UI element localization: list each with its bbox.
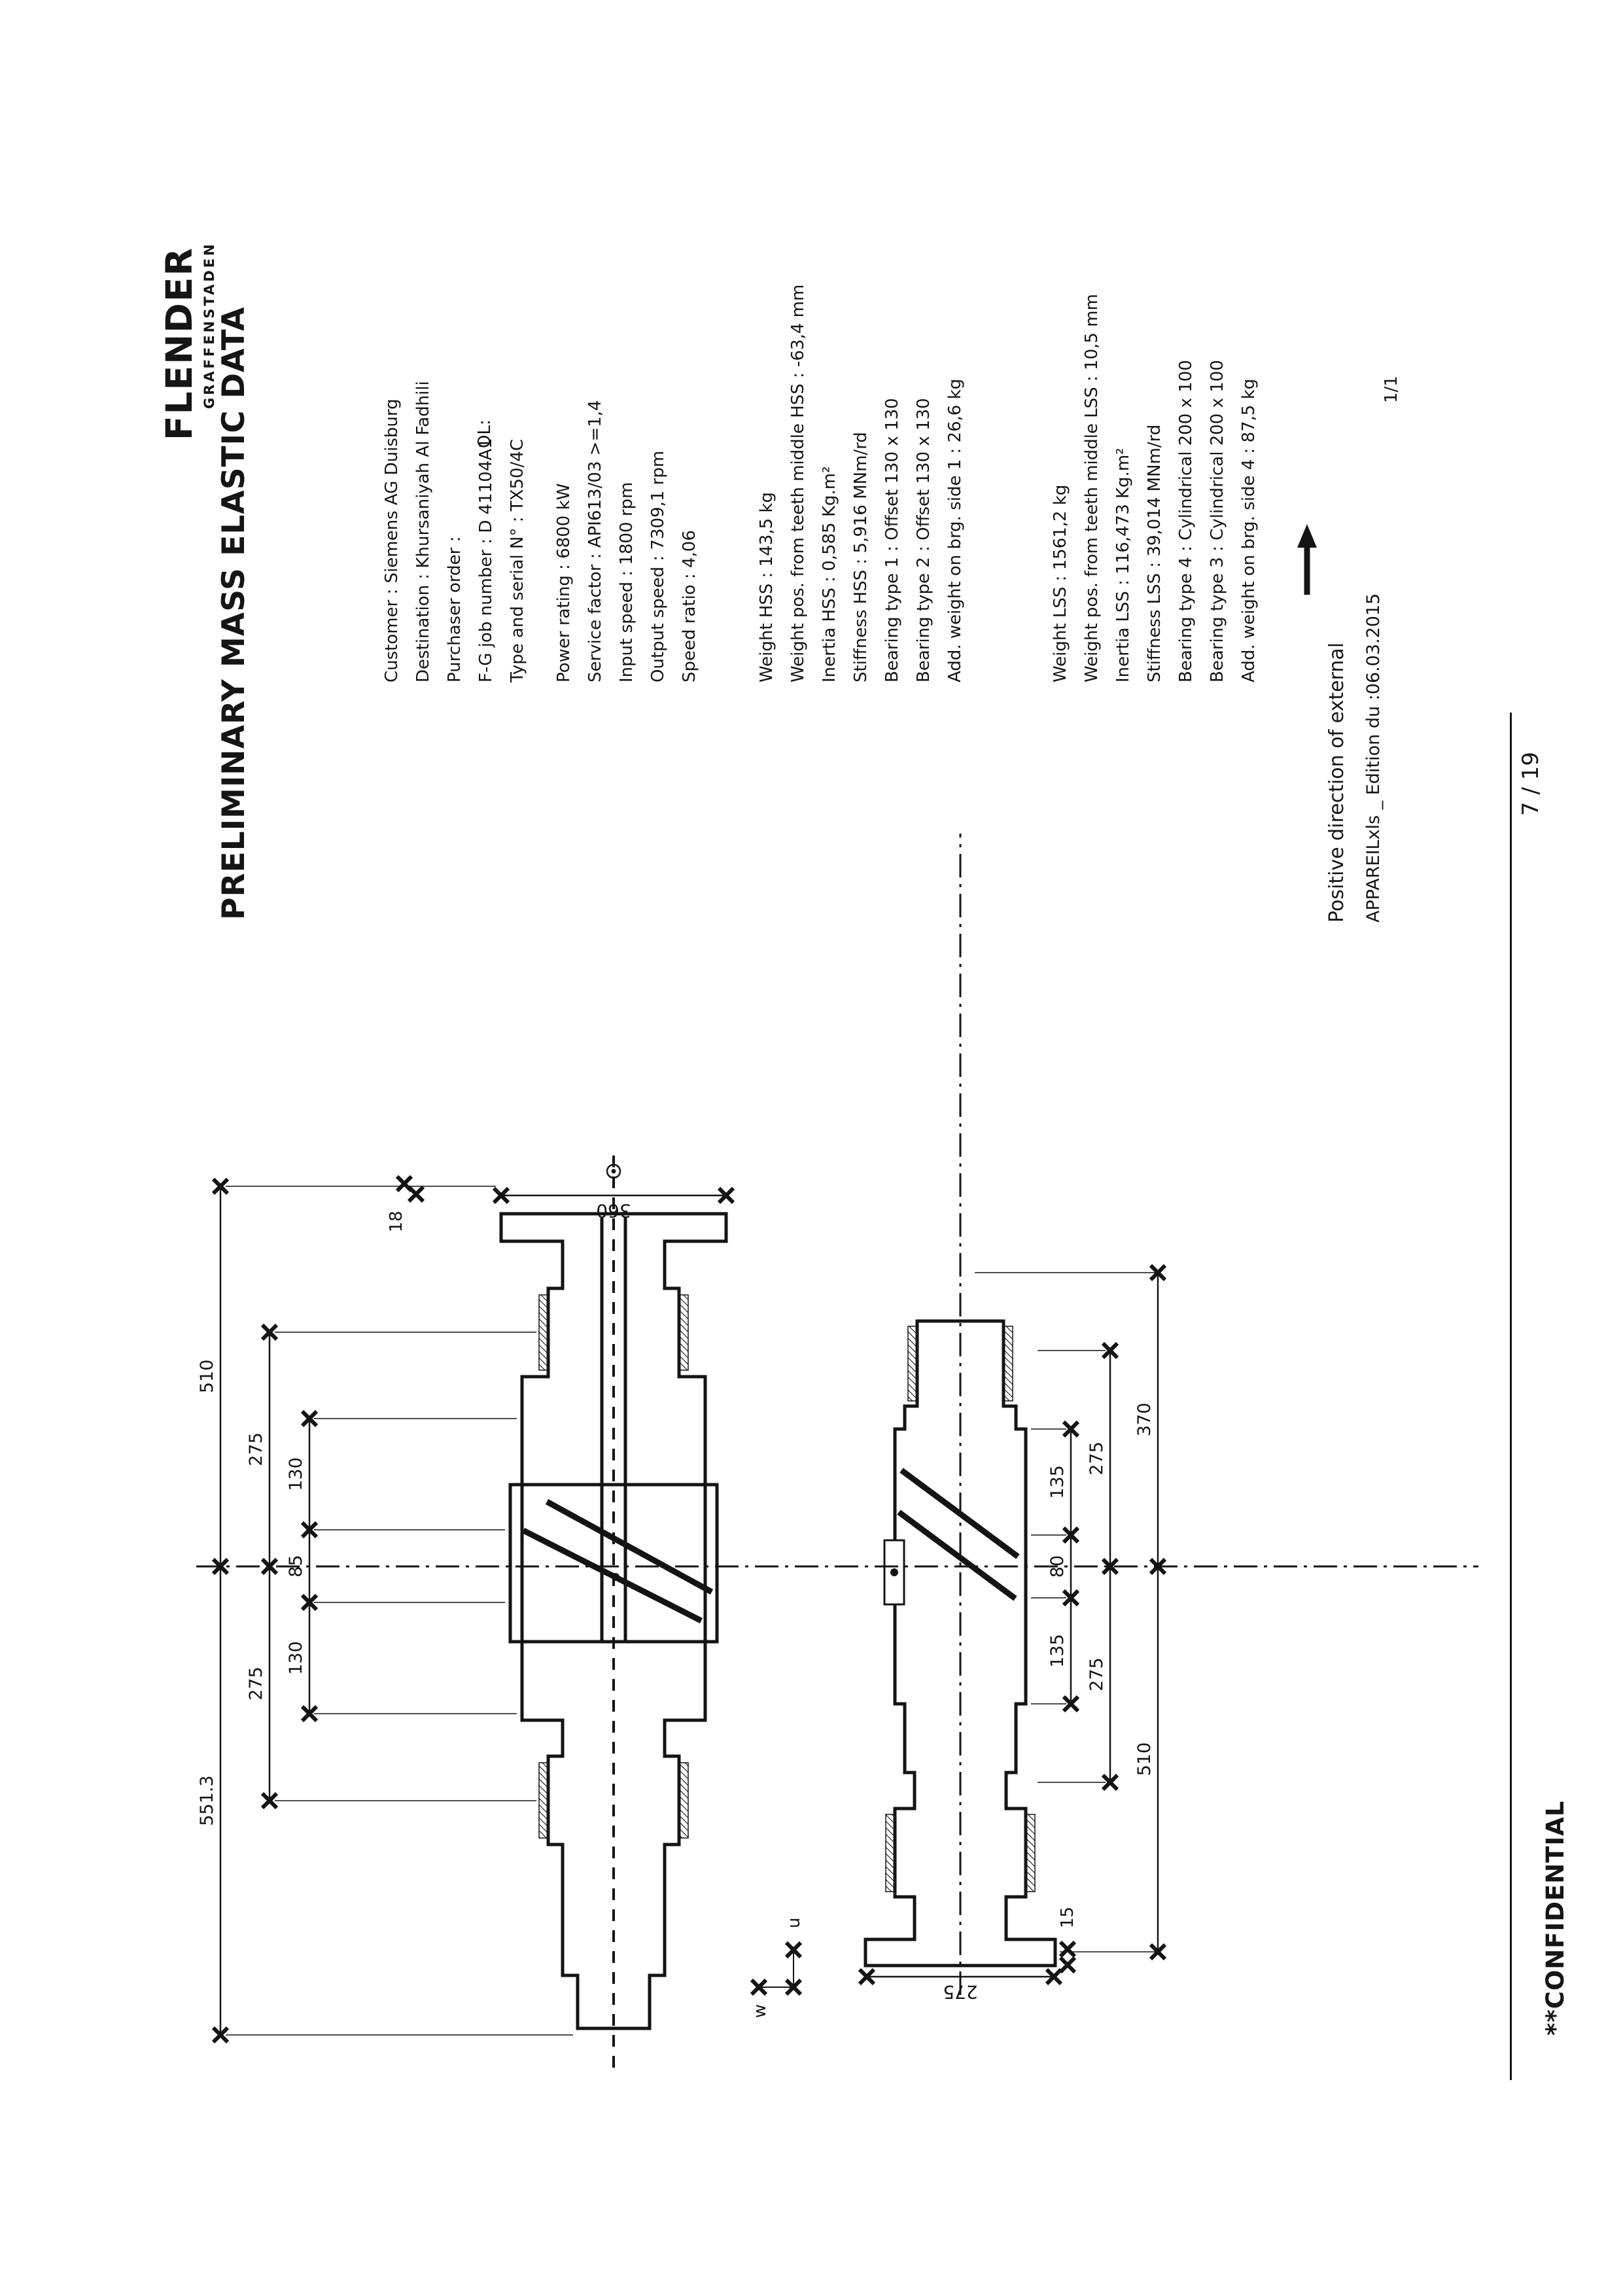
dimension-label: 275 bbox=[1087, 1441, 1107, 1475]
dimension-label: 15 bbox=[1058, 1907, 1077, 1928]
dimension-label: 135 bbox=[1047, 1465, 1068, 1499]
dimension-label: 130 bbox=[286, 1641, 306, 1675]
bearing-pad bbox=[886, 1814, 895, 1892]
axis-end-symbol-dot bbox=[612, 1169, 616, 1174]
hss-cg-dot bbox=[612, 1573, 620, 1581]
dimension-label: 360 bbox=[596, 1200, 631, 1222]
dimension-label: 510 bbox=[197, 1360, 217, 1394]
bearing-pad bbox=[908, 1326, 917, 1401]
dimension-label: 130 bbox=[286, 1457, 306, 1491]
dimension-label: 551.3 bbox=[197, 1775, 217, 1826]
dimension-label: 275 bbox=[246, 1432, 266, 1466]
positive-direction-arrow bbox=[1297, 524, 1317, 595]
station-x-marker bbox=[409, 1187, 423, 1201]
dimension-label: 275 bbox=[246, 1667, 266, 1701]
bearing-pad bbox=[679, 1763, 688, 1838]
bearing-pad bbox=[1003, 1326, 1013, 1401]
pinion-helix-mark bbox=[547, 1502, 712, 1592]
dimension-label: 85 bbox=[286, 1555, 306, 1577]
dimension-label: u bbox=[784, 1918, 804, 1928]
added-weight-dot bbox=[890, 1568, 898, 1576]
scanned-document: { "logo": { "brand": "FLENDER", "sub": "… bbox=[0, 0, 1623, 2296]
document-page: FLENDER GRAFFENSTADEN PRELIMINARY MASS E… bbox=[0, 0, 1623, 2296]
dimension-label: 370 bbox=[1134, 1403, 1155, 1437]
wheel-helix-mark bbox=[899, 1512, 1015, 1598]
dimension-label: w bbox=[750, 2004, 770, 2018]
dimension-label: 275 bbox=[943, 1981, 977, 2003]
mass-elastic-diagram: 551.351027527513085130135801352752755103… bbox=[0, 0, 1623, 2296]
bearing-pad bbox=[1026, 1814, 1035, 1892]
dimension-label: 510 bbox=[1134, 1742, 1155, 1776]
bearing-pad bbox=[679, 1295, 688, 1370]
dimension-label: 18 bbox=[387, 1210, 406, 1232]
dimension-label: 135 bbox=[1047, 1634, 1068, 1668]
dimension-label: 80 bbox=[1047, 1555, 1068, 1578]
station-x-marker bbox=[1060, 1958, 1075, 1972]
bearing-pad bbox=[539, 1295, 548, 1370]
station-x-marker bbox=[1060, 1942, 1075, 1956]
bearing-pad bbox=[539, 1763, 548, 1838]
dimension-label: 275 bbox=[1087, 1657, 1107, 1691]
